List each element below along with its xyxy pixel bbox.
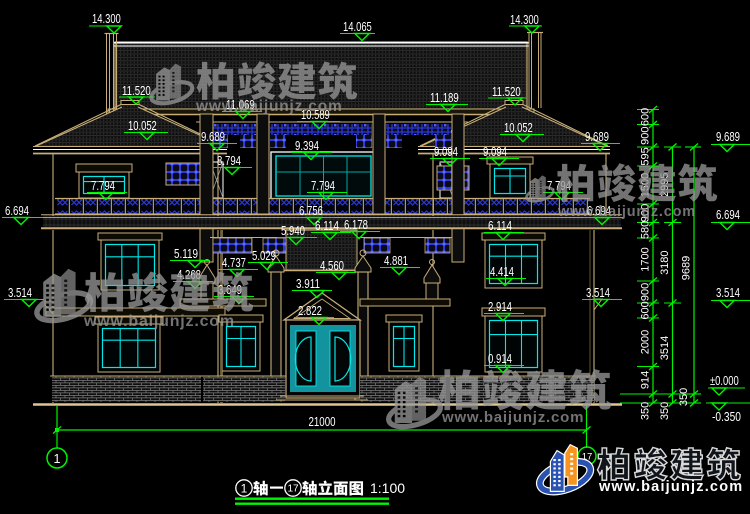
svg-text:3.514: 3.514 bbox=[716, 286, 740, 300]
svg-text:10.052: 10.052 bbox=[504, 121, 533, 135]
svg-text:1:100: 1:100 bbox=[370, 480, 405, 496]
svg-text:9.689: 9.689 bbox=[585, 130, 609, 144]
svg-text:600: 600 bbox=[640, 301, 652, 319]
svg-text:7.794: 7.794 bbox=[311, 179, 335, 193]
svg-text:6.114: 6.114 bbox=[315, 219, 339, 233]
svg-text:900: 900 bbox=[640, 127, 652, 145]
svg-text:3514: 3514 bbox=[659, 336, 671, 360]
svg-text:4.414: 4.414 bbox=[490, 265, 514, 279]
svg-text:17: 17 bbox=[287, 484, 299, 495]
svg-text:www.baijunjz.com: www.baijunjz.com bbox=[83, 313, 235, 330]
svg-text:580: 580 bbox=[640, 221, 652, 239]
svg-text:9.094: 9.094 bbox=[434, 145, 458, 159]
svg-text:www.baijunjz.com: www.baijunjz.com bbox=[441, 409, 584, 426]
svg-text:7.794: 7.794 bbox=[91, 179, 115, 193]
svg-text:6.756: 6.756 bbox=[299, 204, 323, 218]
svg-text:11.189: 11.189 bbox=[430, 91, 459, 105]
svg-text:5.940: 5.940 bbox=[281, 224, 305, 238]
svg-text:3.911: 3.911 bbox=[296, 277, 320, 291]
svg-text:2.822: 2.822 bbox=[298, 304, 322, 318]
svg-text:11.520: 11.520 bbox=[122, 84, 151, 98]
svg-text:14.300: 14.300 bbox=[510, 13, 539, 27]
svg-text:914: 914 bbox=[640, 371, 652, 389]
svg-text:6.114: 6.114 bbox=[488, 219, 512, 233]
svg-text:595: 595 bbox=[640, 147, 652, 165]
svg-text:3.514: 3.514 bbox=[8, 286, 32, 300]
svg-text:14.300: 14.300 bbox=[92, 12, 121, 26]
svg-text:21000: 21000 bbox=[309, 415, 336, 429]
svg-text:3180: 3180 bbox=[659, 250, 671, 274]
svg-text:5.119: 5.119 bbox=[174, 247, 198, 261]
svg-text:9689: 9689 bbox=[681, 256, 693, 280]
svg-text:5.029: 5.029 bbox=[252, 249, 276, 263]
svg-text:0.914: 0.914 bbox=[488, 352, 512, 366]
svg-text:350: 350 bbox=[640, 402, 652, 420]
svg-text:www.baijunjz.com: www.baijunjz.com bbox=[598, 479, 743, 495]
svg-text:±0.000: ±0.000 bbox=[710, 374, 739, 388]
svg-text:-0.350: -0.350 bbox=[712, 410, 741, 424]
svg-text:350: 350 bbox=[659, 402, 671, 420]
svg-text:2000: 2000 bbox=[640, 330, 652, 354]
svg-text:1: 1 bbox=[241, 482, 248, 496]
svg-text:11.520: 11.520 bbox=[492, 85, 521, 99]
svg-text:8.794: 8.794 bbox=[217, 154, 241, 168]
svg-text:14.065: 14.065 bbox=[343, 20, 372, 34]
svg-text:6.178: 6.178 bbox=[344, 218, 368, 232]
svg-text:6.694: 6.694 bbox=[716, 208, 740, 222]
svg-text:9.689: 9.689 bbox=[716, 130, 740, 144]
svg-text:4.881: 4.881 bbox=[384, 254, 408, 268]
svg-text:3.514: 3.514 bbox=[586, 286, 610, 300]
svg-text:9.094: 9.094 bbox=[483, 145, 507, 159]
svg-text:10.052: 10.052 bbox=[128, 119, 157, 133]
svg-text:1700: 1700 bbox=[640, 247, 652, 271]
svg-text:4.560: 4.560 bbox=[320, 259, 344, 273]
svg-text:4.737: 4.737 bbox=[222, 256, 246, 270]
svg-text:600: 600 bbox=[640, 108, 652, 126]
svg-text:2.914: 2.914 bbox=[488, 300, 512, 314]
svg-text:900: 900 bbox=[640, 283, 652, 301]
svg-text:9.394: 9.394 bbox=[295, 139, 319, 153]
svg-text:www.baijunjz.com: www.baijunjz.com bbox=[557, 204, 696, 220]
svg-text:9.689: 9.689 bbox=[201, 130, 225, 144]
svg-text:350: 350 bbox=[678, 388, 690, 406]
svg-text:6.694: 6.694 bbox=[5, 204, 29, 218]
svg-text:1: 1 bbox=[54, 452, 61, 466]
svg-text:www.baijunjz.com: www.baijunjz.com bbox=[195, 98, 343, 115]
